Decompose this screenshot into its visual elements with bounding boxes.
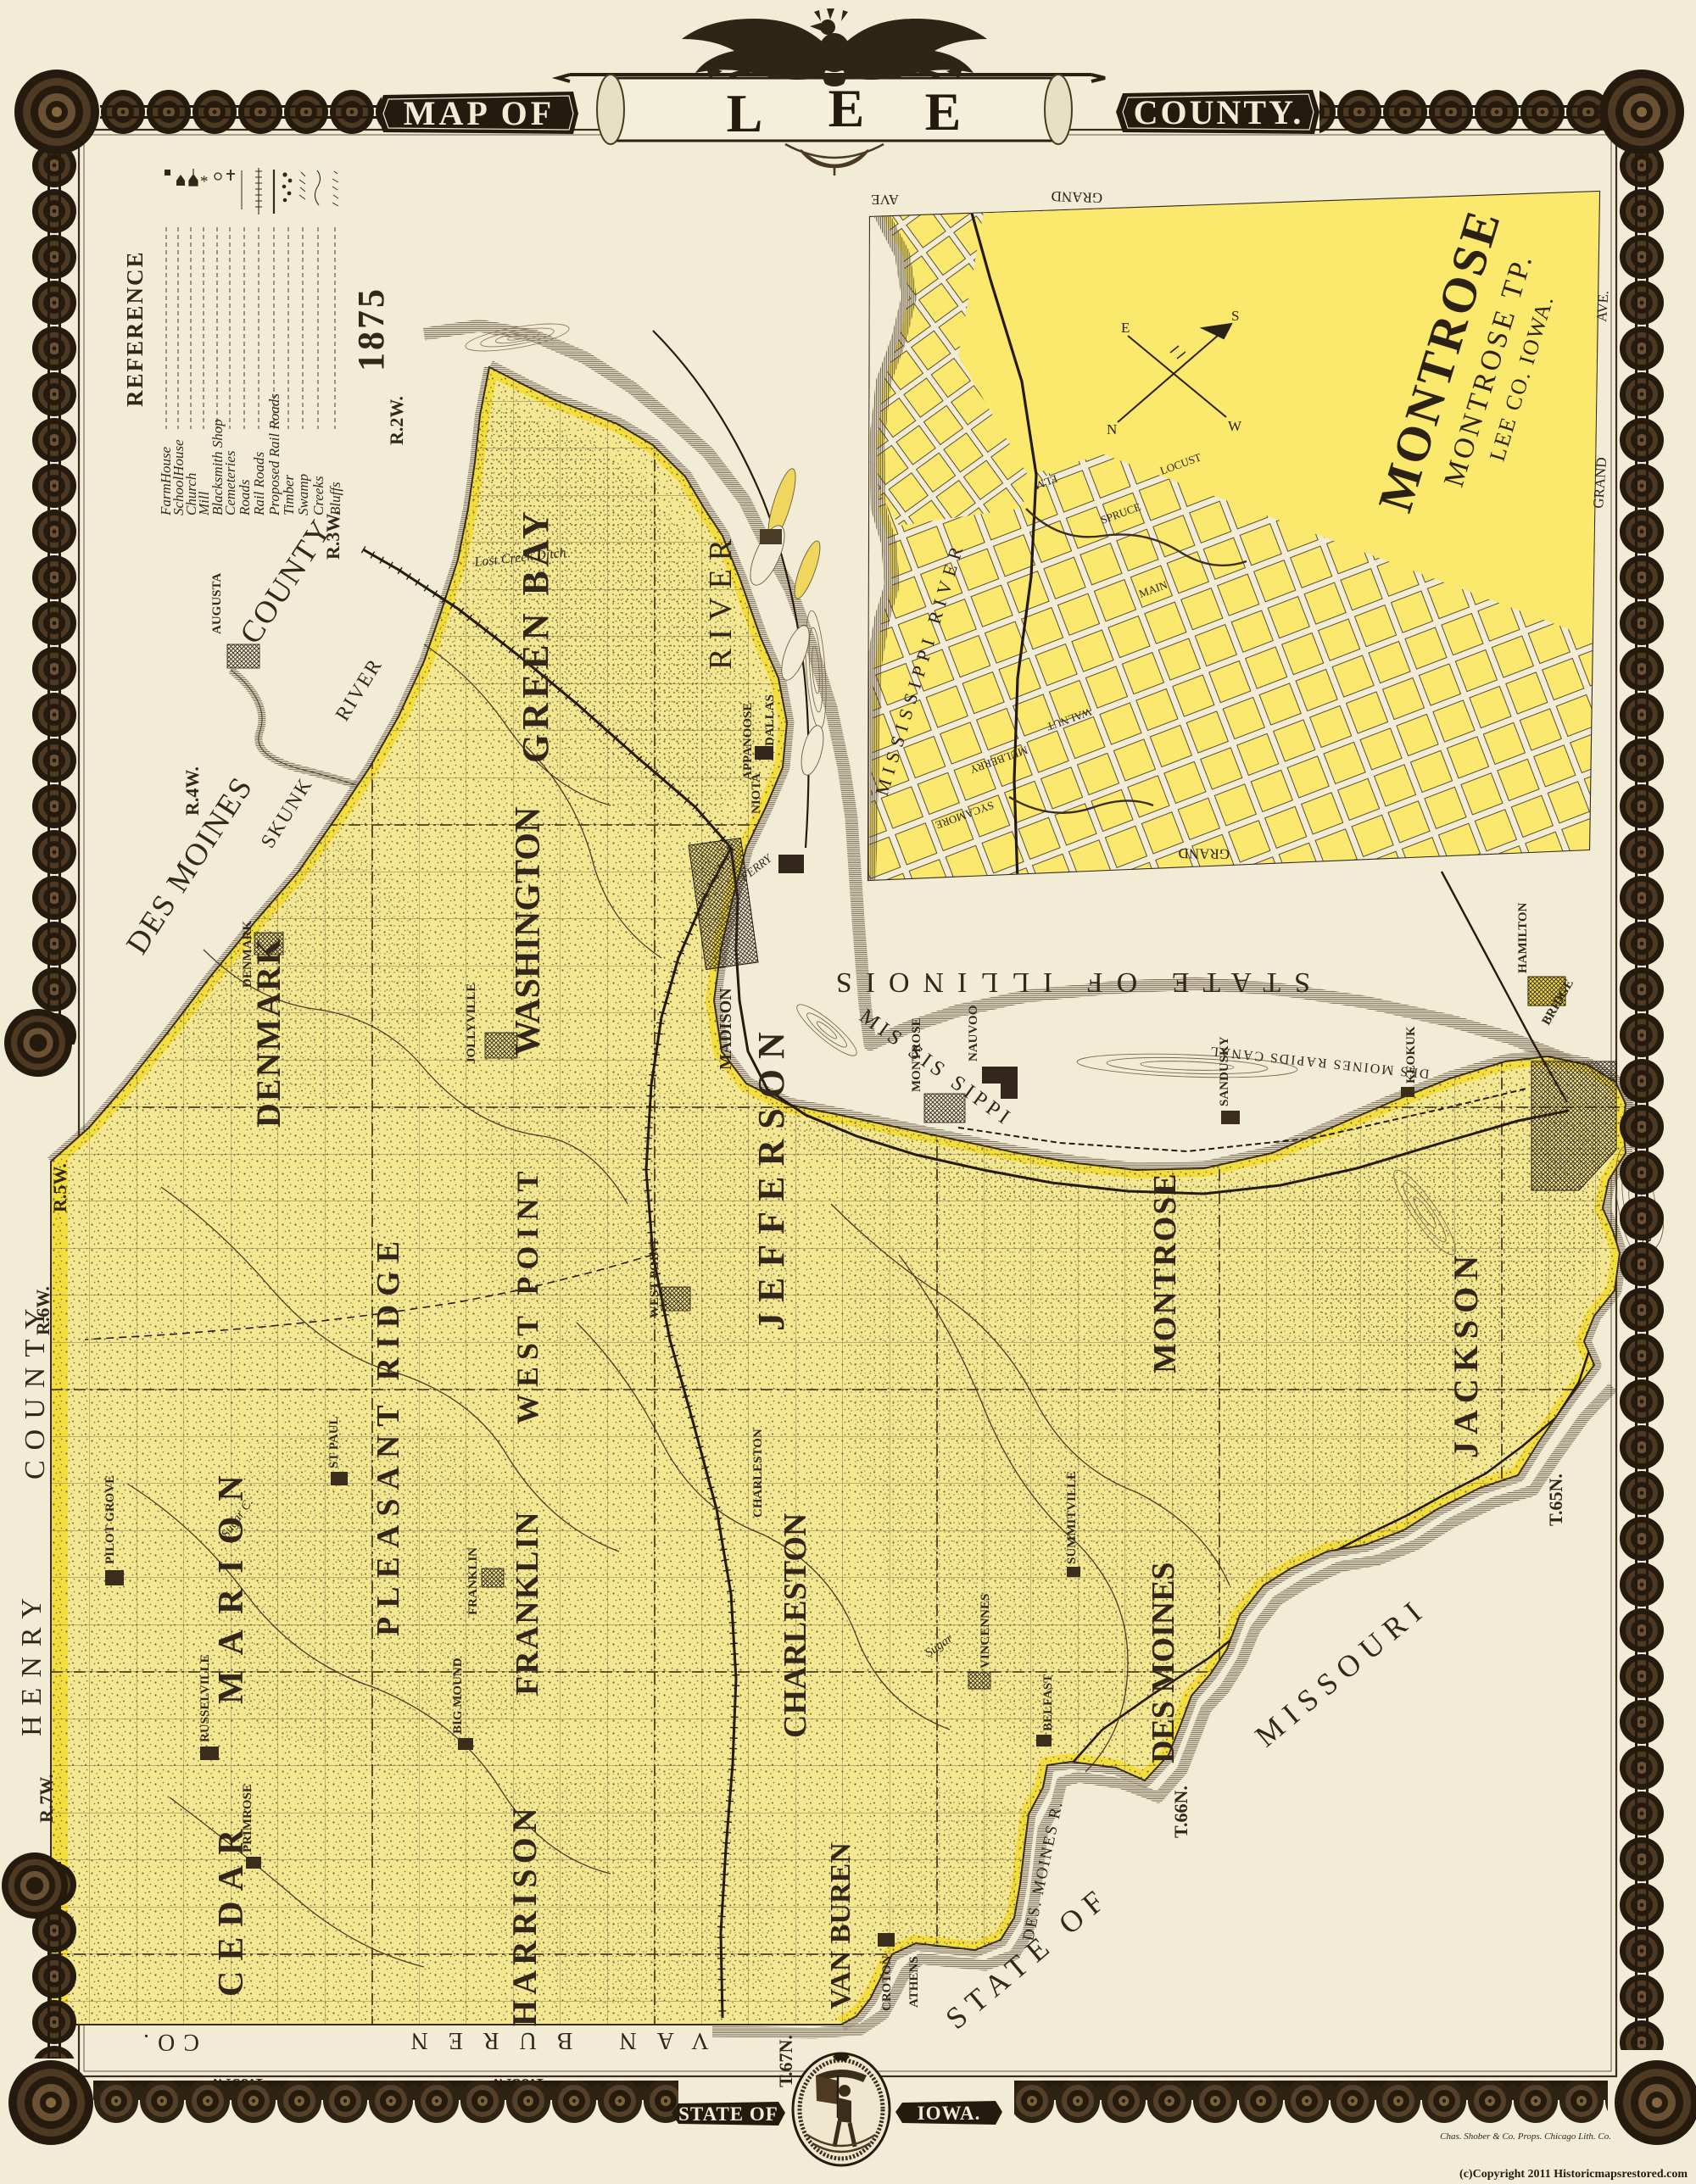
svg-text:AUGUSTA: AUGUSTA — [210, 573, 224, 634]
svg-text:FRANKLIN: FRANKLIN — [510, 1510, 545, 1696]
svg-text:R.4W.: R.4W. — [181, 766, 203, 816]
svg-text:NAUVOO: NAUVOO — [967, 1006, 980, 1061]
svg-text:AVE.: AVE. — [1593, 290, 1612, 322]
svg-text:ST PAUL: ST PAUL — [327, 1416, 341, 1468]
svg-text:PRIMROSE: PRIMROSE — [241, 1784, 254, 1852]
svg-text:T.66N.: T.66N. — [1170, 1786, 1191, 1838]
svg-text:W: W — [1228, 418, 1242, 434]
svg-text:CHARLESTON: CHARLESTON — [751, 1429, 765, 1518]
svg-text:DENMARK: DENMARK — [249, 937, 287, 1128]
svg-text:T.67N.: T.67N. — [775, 2035, 796, 2087]
svg-text:R.6W.: R.6W. — [32, 1286, 53, 1335]
svg-text:E: E — [1121, 320, 1130, 336]
svg-text:FRANKLIN: FRANKLIN — [466, 1547, 480, 1615]
svg-text:STATE OF ILLINOIS: STATE OF ILLINOIS — [823, 967, 1310, 998]
svg-text:COUNTY.: COUNTY. — [1134, 93, 1304, 131]
svg-text:VAN BUREN: VAN BUREN — [825, 1842, 856, 2009]
svg-text:E: E — [828, 78, 865, 138]
svg-text:*: * — [200, 173, 209, 191]
svg-text:L: L — [727, 83, 763, 143]
svg-text:HENRY: HENRY — [16, 1588, 47, 1736]
svg-text:JOLLYVILLE: JOLLYVILLE — [465, 983, 478, 1064]
svg-text:MAP OF: MAP OF — [404, 94, 555, 132]
svg-text:WEST POINT: WEST POINT — [510, 1165, 544, 1424]
svg-text:R.2W.: R.2W. — [386, 396, 407, 445]
svg-text:BIG MOUND: BIG MOUND — [451, 1657, 465, 1734]
svg-text:T.65N.: T.65N. — [1545, 1474, 1566, 1526]
svg-text:APPANOOSE: APPANOOSE — [741, 703, 755, 780]
svg-text:DALLAS: DALLAS — [763, 694, 777, 746]
svg-text:HAMILTON: HAMILTON — [1516, 902, 1530, 973]
svg-text:MONTROSE: MONTROSE — [1147, 1172, 1183, 1373]
svg-text:SUMMITVILLE: SUMMITVILLE — [1065, 1471, 1079, 1564]
svg-text:IOWA.: IOWA. — [918, 2103, 981, 2124]
svg-text:BELFAST: BELFAST — [1041, 1674, 1055, 1731]
svg-text:WASHINGTON: WASHINGTON — [509, 807, 548, 1056]
svg-text:CROTON: CROTON — [880, 1955, 894, 2011]
svg-text:R.3W.: R.3W. — [322, 510, 343, 560]
svg-text:CO.: CO. — [135, 2029, 199, 2055]
svg-text:Chas. Shober & Co. Props. Chic: Chas. Shober & Co. Props. Chicago Lith. … — [1440, 2131, 1611, 2142]
svg-text:KEOKUK: KEOKUK — [1404, 1026, 1418, 1084]
svg-text:PILOT GROVE: PILOT GROVE — [103, 1475, 117, 1564]
svg-text:WEST POINT: WEST POINT — [648, 1239, 661, 1318]
svg-text:SANDUSKY: SANDUSKY — [1218, 1036, 1231, 1106]
svg-text:RUSSELVILLE: RUSSELVILLE — [198, 1654, 212, 1742]
svg-text:R.5W.: R.5W. — [49, 1163, 70, 1212]
svg-text:1875: 1875 — [350, 287, 392, 371]
svg-text:CHARLESTON: CHARLESTON — [778, 1513, 813, 1738]
svg-text:GRAND: GRAND — [1051, 188, 1102, 206]
svg-text:ATHENS: ATHENS — [907, 1956, 921, 2008]
svg-text:VINCENNES: VINCENNES — [979, 1594, 992, 1669]
svg-text:RIVER: RIVER — [703, 531, 739, 670]
svg-text:PLEASANT RIDGE: PLEASANT RIDGE — [371, 1233, 406, 1636]
svg-text:STATE OF: STATE OF — [678, 2103, 778, 2125]
svg-text:E: E — [925, 81, 962, 142]
svg-text:MONTROSE: MONTROSE — [910, 1017, 923, 1092]
svg-text:GREEN BAY: GREEN BAY — [515, 508, 556, 763]
svg-text:AVE: AVE — [871, 192, 899, 208]
svg-text:R.7W.: R.7W. — [36, 1774, 57, 1823]
svg-text:JACKSON: JACKSON — [1447, 1249, 1485, 1458]
svg-text:S: S — [1231, 308, 1239, 324]
svg-text:Swamp: Swamp — [295, 474, 311, 515]
svg-text:JEFFERSON: JEFFERSON — [750, 1022, 792, 1331]
svg-text:HARRISON: HARRISON — [505, 1802, 544, 2026]
svg-text:(c)Copyright 2011 Historicmaps: (c)Copyright 2011 Historicmapsrestored.c… — [1459, 2168, 1688, 2181]
svg-text:REFERENCE: REFERENCE — [122, 250, 148, 407]
svg-text:GRAND: GRAND — [1178, 845, 1230, 862]
svg-text:Creeks: Creeks — [310, 476, 326, 515]
svg-text:MADISON: MADISON — [717, 988, 735, 1070]
svg-text:DENMARK: DENMARK — [241, 921, 254, 988]
svg-text:VAN BUREN: VAN BUREN — [391, 2027, 709, 2053]
svg-text:Rail Roads: Rail Roads — [251, 452, 267, 516]
svg-text:N: N — [1107, 421, 1117, 437]
svg-text:Bluffs: Bluffs — [327, 482, 343, 515]
svg-text:DES MOINES: DES MOINES — [1146, 1562, 1181, 1763]
